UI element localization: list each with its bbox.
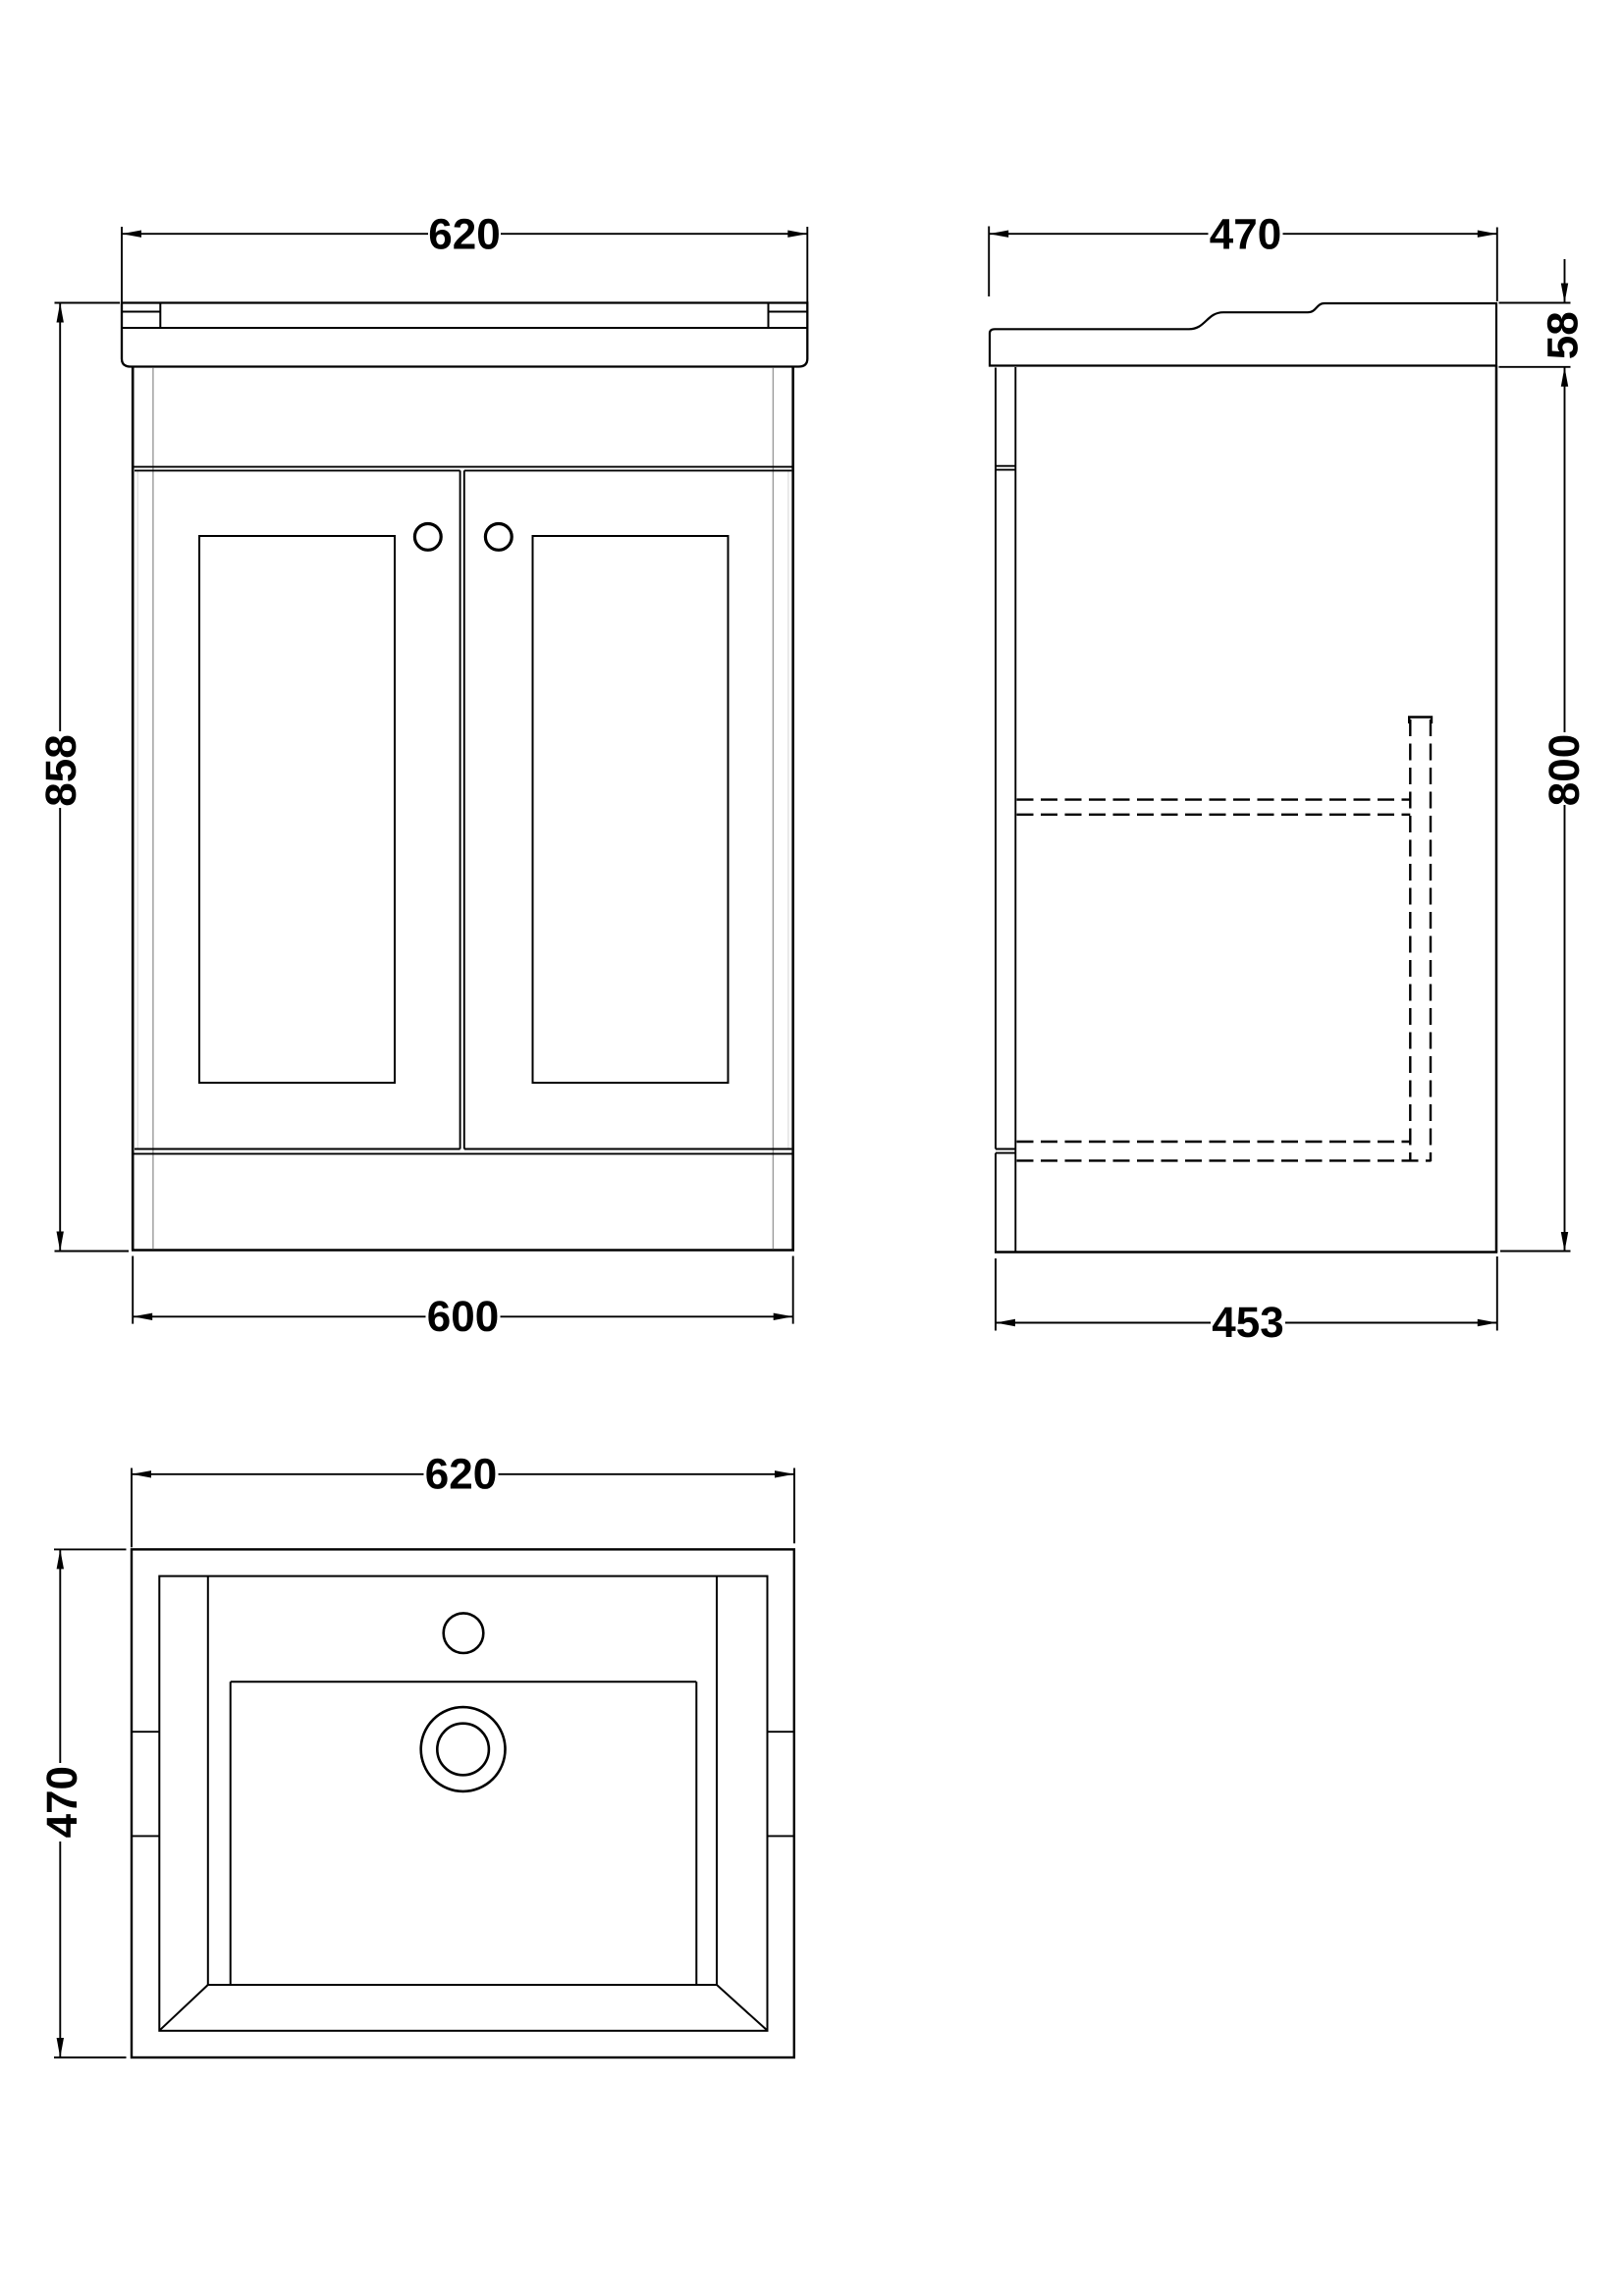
svg-text:800: 800: [1541, 734, 1589, 806]
svg-text:600: 600: [427, 1293, 499, 1341]
svg-text:470: 470: [38, 1766, 86, 1838]
svg-text:453: 453: [1212, 1299, 1283, 1347]
svg-text:470: 470: [1210, 210, 1281, 258]
svg-text:858: 858: [37, 734, 85, 806]
svg-text:620: 620: [428, 211, 500, 259]
svg-text:58: 58: [1540, 311, 1588, 359]
svg-text:620: 620: [425, 1451, 497, 1499]
